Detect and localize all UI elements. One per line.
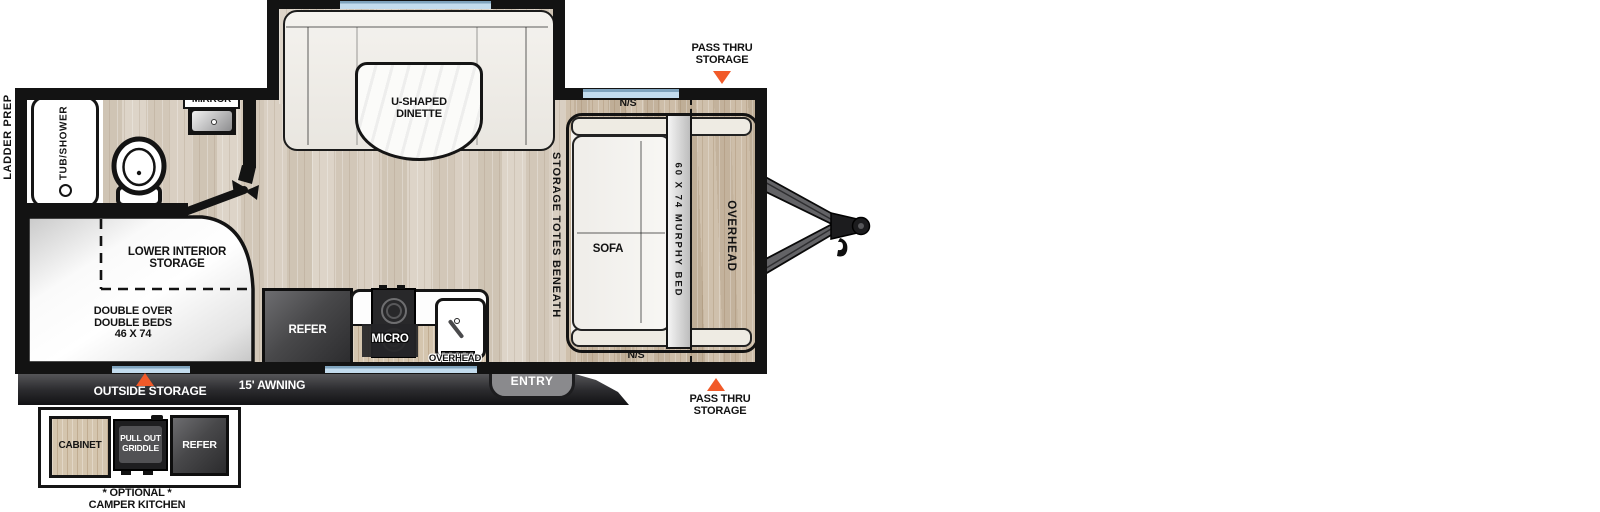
top-wall-left xyxy=(15,88,279,100)
front-window xyxy=(583,89,679,98)
floorplan: LADDER PREP xyxy=(0,0,1600,512)
dinette-label-line2: DINETTE xyxy=(396,108,442,120)
entry-side-window xyxy=(325,366,477,373)
sofa: SOFA xyxy=(572,135,671,331)
bath-sink-icon xyxy=(188,107,236,135)
shower-head-icon xyxy=(59,184,72,197)
murphy-bed-label: 60 X 74 MURPHY BED xyxy=(673,162,684,297)
kitchen-sink-icon xyxy=(435,298,486,359)
outside-storage-label: OUTSIDE STORAGE xyxy=(80,385,220,398)
micro-label: MICRO xyxy=(362,333,418,345)
right-wall xyxy=(755,88,767,374)
refer-label: REFER xyxy=(265,324,350,336)
griddle-handle-icon xyxy=(151,415,163,420)
awning-label: 15' AWNING xyxy=(212,379,332,392)
hitch-icon xyxy=(760,174,870,277)
bed-headboard xyxy=(571,117,752,136)
dinette-bench-armline-right xyxy=(525,27,527,145)
optional-refer-box: REFER xyxy=(170,415,229,476)
slideout-wall-left xyxy=(267,0,279,98)
lower-interior-storage-label: LOWER INTERIOR STORAGE xyxy=(106,246,248,271)
double-bed-area xyxy=(28,217,253,363)
left-wall xyxy=(15,88,27,374)
dinette-bench-backline xyxy=(286,26,548,28)
slideout-window xyxy=(340,1,491,9)
slideout-wall-right xyxy=(553,0,565,98)
bathroom-door-icon xyxy=(185,165,259,212)
storage-totes-label: STORAGE TOTES BENEATH xyxy=(550,152,562,318)
tub-shower: TUB/SHOWER xyxy=(31,96,99,208)
outside-storage-arrow-icon xyxy=(136,373,154,386)
bathroom-wall xyxy=(243,88,256,168)
pass-thru-top-label: PASS THRU STORAGE xyxy=(662,43,782,67)
toilet-icon xyxy=(114,139,164,205)
cabinet-label: CABINET xyxy=(48,441,112,452)
optional-refer-label: REFER xyxy=(173,440,226,451)
camper-kitchen-box: CABINET PULL OUT GRIDDLE REFER xyxy=(38,407,241,488)
sofa-label: SOFA xyxy=(578,243,638,255)
murphy-bed-strip: 60 X 74 MURPHY BED xyxy=(666,114,692,349)
griddle-label: PULL OUT GRIDDLE xyxy=(115,434,166,454)
dinette-label-line1: U-SHAPED xyxy=(391,96,447,108)
pass-thru-bottom-arrow-icon xyxy=(707,378,725,391)
ns-bottom-label: N/S xyxy=(608,350,664,361)
dinette-bench-armline-left xyxy=(307,27,309,145)
cabinet-box: CABINET xyxy=(49,416,111,478)
micro-box: MICRO xyxy=(362,324,418,357)
tub-shower-label: TUB/SHOWER xyxy=(59,106,70,180)
optional-caption: * OPTIONAL * CAMPER KITCHEN xyxy=(47,487,227,512)
murphy-dashed-line xyxy=(690,99,692,362)
pass-thru-bottom-label: PASS THRU STORAGE xyxy=(660,394,780,418)
double-beds-label: DOUBLE OVER DOUBLE BEDS 46 X 74 xyxy=(63,306,203,341)
overhead-front-label: OVERHEAD xyxy=(725,200,737,272)
overhead-kitchen-label: OVERHEAD xyxy=(420,354,490,364)
pass-thru-top-arrow-icon xyxy=(713,71,731,84)
dinette-table: U-SHAPED DINETTE xyxy=(355,62,483,161)
refer-box: REFER xyxy=(262,288,353,370)
bathroom-bottom-wall xyxy=(22,203,188,216)
entry-label: ENTRY xyxy=(492,375,572,388)
griddle-box: PULL OUT GRIDDLE xyxy=(113,419,168,471)
rear-storage-door-window xyxy=(112,366,190,373)
